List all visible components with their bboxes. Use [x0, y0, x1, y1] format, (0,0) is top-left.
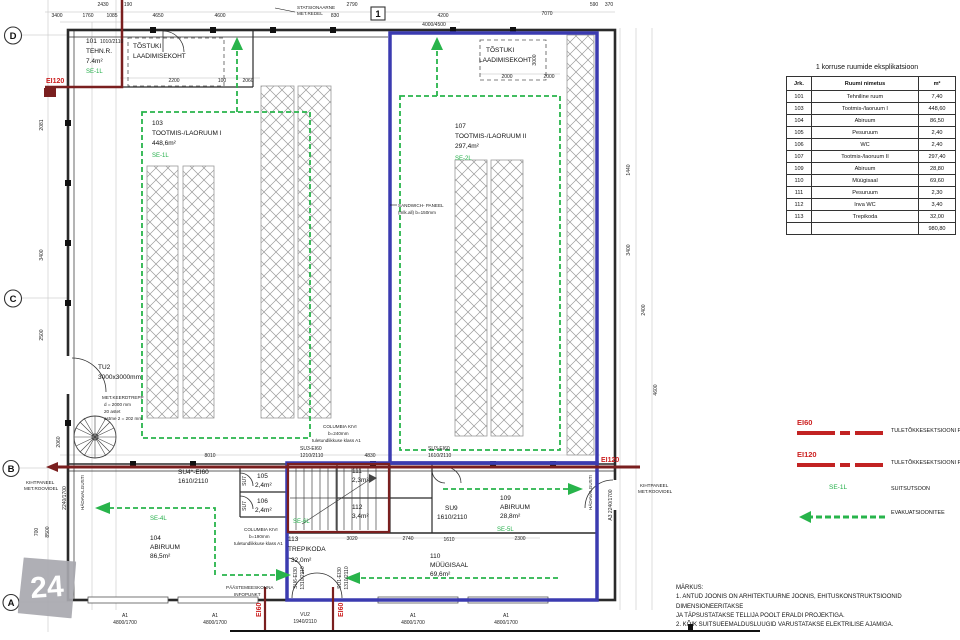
- room-label: 1610/2110: [178, 478, 209, 485]
- room-label: 103: [152, 120, 163, 127]
- legend-row-ei120: EI120 TULETÕKKESEKTSIOONI PIIR: [795, 450, 960, 480]
- table-row: 104Abiruum86,50: [787, 115, 956, 127]
- floor-plan: DCBA1STATSIONAARNEMET.REDEL1011010/2110T…: [0, 0, 760, 640]
- dimension-label: SU1-EI30: [337, 567, 343, 589]
- dimension-label: 3400: [39, 249, 45, 260]
- annotation-label: PÄÄSTEMEESKONNA: [226, 584, 274, 590]
- annotation-label: STATSIONAARNE: [297, 5, 335, 10]
- annotation-label: 20 astet: [104, 409, 121, 414]
- room-label: TU2: [98, 364, 111, 371]
- room-label: 101: [86, 38, 97, 45]
- room-label: 2,4m²: [255, 482, 272, 489]
- table-row: 111Pesuruum2,30: [787, 187, 956, 199]
- dimension-label: 830: [331, 13, 340, 19]
- total-area: 980,80: [919, 223, 956, 235]
- annotation-label: MET.KEERDTREPP: [102, 395, 144, 400]
- grid-marker-label: B: [8, 464, 15, 475]
- room-label: TEHN.R.: [86, 48, 112, 55]
- dimension-label: SU3-EI60: [428, 446, 450, 452]
- room-label: 297,4m²: [455, 143, 480, 150]
- grid-marker-label: A: [8, 598, 15, 609]
- dimension-label: 3020: [346, 536, 357, 542]
- dimension-label: 2790: [346, 2, 357, 8]
- room-label: 86,5m²: [150, 553, 171, 560]
- dimension-label: 1760: [82, 13, 93, 19]
- dimension-label: 190: [124, 2, 133, 8]
- smoke-zone-label: SE-1L: [152, 153, 169, 159]
- storage-racks: [147, 35, 594, 455]
- legend-label-ei60: TULETÕKKESEKTSIOONI PIIR: [891, 428, 960, 434]
- dimension-label: 590: [590, 2, 599, 8]
- annotation-label: HÄDAVALGUSTI: [79, 475, 85, 510]
- dimension-label: A1: [503, 613, 509, 619]
- smoke-zone-label: SE-5L: [497, 527, 514, 533]
- legend-code-se1l: SE-1L: [829, 484, 847, 491]
- dimension-label: 1010/2110: [100, 39, 123, 45]
- dimension-label: 2500: [39, 329, 45, 340]
- header-area: m²: [919, 77, 956, 91]
- annotation-label: b=190mm: [249, 534, 270, 539]
- dimension-label: 1940/2110: [293, 619, 316, 625]
- room-label: TÕSTUKI: [486, 45, 514, 54]
- room-label: SU4*-EI60: [178, 469, 209, 476]
- dimension-label: 1310/2110: [344, 566, 350, 589]
- dimension-label: 1085: [106, 13, 117, 19]
- annotation-label: COLUMBIA KIVI: [244, 527, 278, 532]
- legend-label-evakuatsioonitee: EVAKUATSIOONITEE: [891, 510, 945, 516]
- room-label: TÕSTUKI: [133, 41, 161, 50]
- dimension-label: VU2: [300, 612, 310, 618]
- annotation-label: SANDWICH- PANEEL: [398, 203, 444, 208]
- dimension-label: SU7: [242, 476, 248, 486]
- dimension-label: 4800/1700: [494, 620, 518, 626]
- dimension-label: 4800/1700: [203, 620, 227, 626]
- room-label: MÜÜGISAAL: [430, 561, 469, 569]
- room-label: 3000x3000mm: [98, 374, 141, 381]
- dimension-label: 3400: [626, 244, 632, 255]
- table-row: 103Tootmis-/laoruum I448,60: [787, 103, 956, 115]
- smoke-zone-label: SE-6L: [293, 519, 310, 525]
- room-label: 113: [288, 536, 299, 543]
- fire-rating-label: EI60: [256, 602, 263, 617]
- fire-line-ei120: [797, 463, 885, 467]
- room-label: 448,6m²: [152, 140, 177, 147]
- room-label: 106: [257, 498, 268, 505]
- dimension-label: 4600: [653, 384, 659, 395]
- annotation-label: MET.ROOVIDEL: [638, 489, 673, 494]
- dimension-label: 2430: [97, 2, 108, 8]
- notes-heading: MÄRKUS:: [676, 584, 960, 593]
- annotation-label: astme 2 = 202 mm: [104, 416, 142, 421]
- room-label: LAADIMISEKOHT: [133, 53, 186, 60]
- dimension-label: A1: [122, 613, 128, 619]
- table-header-row: Jrk. Ruumi nimetus m²: [787, 77, 956, 91]
- room-label: ABIRUUM: [150, 544, 180, 551]
- room-label: 110: [430, 553, 441, 560]
- dimension-label: A1: [410, 613, 416, 619]
- table-row: 112Inva WC3,40: [787, 199, 956, 211]
- dimension-label: 370: [605, 2, 614, 8]
- annotation-label: COLUMBIA KIVI: [323, 424, 357, 429]
- room-label: SU9: [445, 505, 458, 512]
- legend-row-ei60: EI60 TULETÕKKESEKTSIOONI PIIR: [795, 418, 960, 448]
- dimension-label: 700: [34, 528, 40, 537]
- dimension-label: 2060: [56, 436, 62, 447]
- dimension-label: 2200: [168, 78, 179, 84]
- room-label: LAADIMISEKOHT: [479, 57, 532, 64]
- grid-marker-label: C: [10, 294, 17, 305]
- grid-marker-label: D: [10, 31, 17, 42]
- annotation-label: b=240mm: [328, 431, 349, 436]
- fire-line-ei60: [797, 431, 885, 435]
- room-label: TOOTMIS-/LAORUUM II: [455, 133, 527, 140]
- dimension-label: 3000: [532, 54, 538, 65]
- annotation-label: KIHTPANEEL: [26, 480, 55, 485]
- dimension-label: SU7: [242, 501, 248, 511]
- table-row: 105Pesuruum2,40: [787, 127, 956, 139]
- dimension-label: 3400: [51, 13, 62, 19]
- room-label: 105: [257, 473, 268, 480]
- room-label: 1610/2110: [437, 514, 468, 521]
- watermark-number: 24: [29, 570, 65, 606]
- room-schedule-title: 1 korruse ruumide eksplikatsioon: [784, 64, 950, 71]
- evacuation-arrow-sample: [797, 510, 887, 524]
- dimension-label: 2240/1700: [62, 486, 68, 510]
- annotation-label: MET.REDEL: [297, 11, 323, 16]
- dimension-label: 4000/4500: [422, 22, 446, 28]
- smoke-zone-label: SE-2L: [455, 156, 472, 162]
- dimension-label: 4800/1700: [401, 620, 425, 626]
- fire-barrier-lines: [44, 0, 640, 632]
- room-label: 104: [150, 535, 161, 542]
- room-label: TOOTMIS-/LAORUUM I: [152, 130, 222, 137]
- dimension-label: 7070: [541, 11, 552, 17]
- annotation-label: MET.ROOVIDEL: [24, 486, 59, 491]
- note-line: 1. ANTUD JOONIS ON ARHITEKTUURNE JOONIS,…: [676, 593, 960, 612]
- room-label: 111: [352, 468, 362, 475]
- notes-block: MÄRKUS: 1. ANTUD JOONIS ON ARHITEKTUURNE…: [676, 584, 960, 630]
- room-label: 107: [455, 123, 466, 130]
- table-row: 110Müügisaal69,60: [787, 175, 956, 187]
- dimension-label: 2300: [514, 536, 525, 542]
- construction-lines: [19, 0, 652, 632]
- note-line: 2. KÕIK SUITSUEEMALDUSLUUGID VARUSTATAKS…: [676, 621, 960, 630]
- note-line: JA TÄPSUSTATAKSE TELLIJA POOLT ERALDI PR…: [676, 612, 960, 621]
- dimension-label: 2740: [402, 536, 413, 542]
- dimension-label: SU6-EI30: [293, 567, 299, 589]
- dimension-label: 8500: [45, 526, 51, 537]
- room-schedule-table: Jrk. Ruumi nimetus m² 101Tehniline ruum7…: [786, 76, 956, 235]
- table-row: 101Tehniline ruum7,40: [787, 91, 956, 103]
- legend-code-ei60: EI60: [797, 418, 812, 427]
- dimension-label: 1210/2110: [300, 453, 323, 459]
- table-row: 109Abiruum28,80: [787, 163, 956, 175]
- annotation-label: (mlk.all) b=150mm: [398, 210, 436, 215]
- room-label: 112: [352, 504, 363, 511]
- legend-label-ei120: TULETÕKKESEKTSIOONI PIIR: [891, 460, 960, 466]
- dimension-label: 1610/2110: [428, 453, 451, 459]
- room-label: 7.4m²: [86, 58, 103, 65]
- dimension-label: 4650: [152, 13, 163, 19]
- legend-label-suitsutsoon: SUITSUTSOON: [891, 486, 930, 492]
- legend-code-ei120: EI120: [797, 450, 817, 459]
- legend-row-evac: EVAKUATSIOONITEE: [795, 508, 960, 538]
- annotation-label: INFOPUNKT: [234, 592, 261, 597]
- fire-rating-label: EI60: [338, 602, 345, 617]
- dimension-label: 2400: [641, 304, 647, 315]
- dimension-label: 4830: [364, 453, 375, 459]
- dimension-label: SU3-EI60: [300, 446, 322, 452]
- header-room-name: Ruumi nimetus: [812, 77, 919, 91]
- annotation-label: tuletundlikkuse klass A1: [234, 541, 283, 546]
- room-label: 2,4m²: [255, 507, 272, 514]
- watermark-24: 24: [14, 554, 80, 622]
- room-label: ABIRUUM: [500, 504, 530, 511]
- table-row: 106WC2,40: [787, 139, 956, 151]
- room-label: 3,4m²: [352, 513, 369, 520]
- room-label: 109: [500, 495, 511, 502]
- annotation-label: d = 2000 mm: [104, 402, 131, 407]
- room-label: 69,6m²: [430, 571, 451, 578]
- dimension-label: 2060: [242, 78, 253, 84]
- smoke-zone-label: SE-1L: [86, 69, 103, 75]
- dimension-label: 1310/2110: [300, 566, 306, 589]
- dimension-label: 8010: [204, 453, 215, 459]
- annotation-label: KIHTPANEEL: [640, 483, 669, 488]
- smoke-zone-label: SE-4L: [150, 516, 167, 522]
- table-total-row: 980,80: [787, 223, 956, 235]
- dimension-label: 2081: [39, 119, 45, 130]
- dimension-label: A1: [212, 613, 218, 619]
- room-label: 32,0m²: [291, 557, 312, 564]
- dimension-label: 4800/1700: [113, 620, 137, 626]
- dimension-label: 1610: [443, 537, 454, 543]
- table-row: 107Tootmis-/laoruum II297,40: [787, 151, 956, 163]
- room-label: TREPIKODA: [288, 546, 326, 553]
- dimension-label: 100: [218, 78, 227, 84]
- dimension-label: 1440: [626, 164, 632, 175]
- fire-rating-label: EI120: [46, 78, 64, 85]
- fire-rating-label: EI120: [601, 457, 619, 464]
- dimension-label: A3 2240/1700: [608, 489, 614, 520]
- dimension-label: 4200: [437, 13, 448, 19]
- room-label: 28,8m²: [500, 513, 521, 520]
- dimension-label: 2000: [543, 74, 554, 80]
- table-row: 113Trepikoda32,00: [787, 211, 956, 223]
- dimension-label: 4600: [214, 13, 225, 19]
- grid-marker-label: 1: [375, 9, 381, 20]
- dimension-label: 2000: [501, 74, 512, 80]
- room-label: 2,3m²: [352, 477, 369, 484]
- annotation-label: tuletundlikkuse klass A1: [312, 438, 361, 443]
- header-jrk: Jrk.: [787, 77, 812, 91]
- annotation-label: HÄDAVALGUSTI: [587, 475, 593, 510]
